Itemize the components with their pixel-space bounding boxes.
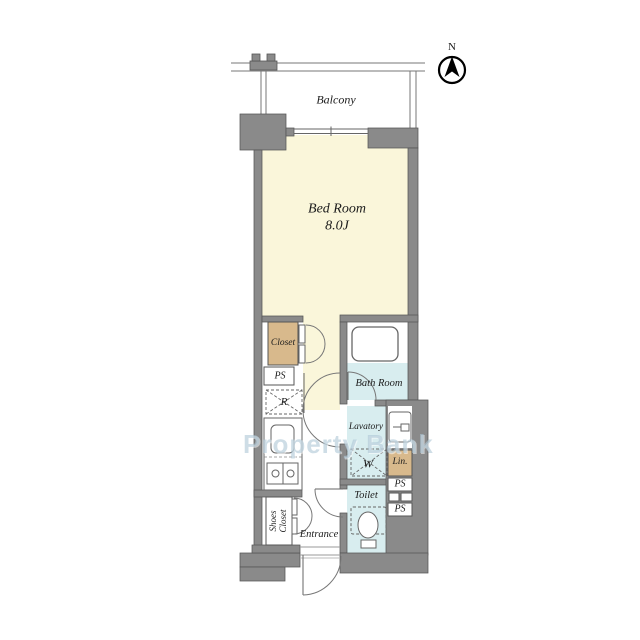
ps-right-b-label: PS bbox=[394, 504, 405, 515]
floor-plan: N Balcony Bed Room 8.0J Closet PS R Bath… bbox=[0, 0, 640, 640]
bathtub-icon bbox=[352, 327, 398, 361]
toilet-label: Toilet bbox=[354, 490, 378, 502]
refrigerator-label: R bbox=[281, 396, 288, 408]
entrance-label: Entrance bbox=[300, 529, 339, 541]
stove-icon bbox=[267, 463, 298, 484]
ps-right-a-label: PS bbox=[394, 479, 405, 490]
rail-bracket bbox=[250, 54, 277, 70]
toilet-door-arc bbox=[315, 489, 343, 517]
duct-box-a bbox=[389, 493, 399, 501]
bath-label: Bath Room bbox=[356, 378, 403, 390]
corridor-floor bbox=[303, 322, 340, 410]
ps-left-label: PS bbox=[274, 371, 285, 382]
bedroom-name-label: Bed Room bbox=[308, 201, 366, 216]
duct-box-b bbox=[401, 493, 412, 501]
closet-label: Closet bbox=[271, 338, 295, 348]
north-label: N bbox=[448, 41, 456, 53]
shoes-closet-label-line2: Closet bbox=[279, 509, 289, 532]
bedroom-size-label: 8.0J bbox=[325, 218, 349, 233]
north-arrow-icon bbox=[439, 57, 465, 84]
watermark: Property Bank bbox=[243, 429, 434, 460]
shoes-closet-label: Shoes Closet bbox=[269, 509, 289, 532]
entrance-door-arc bbox=[300, 555, 341, 595]
bedroom-window bbox=[294, 127, 368, 137]
balcony-label: Balcony bbox=[316, 93, 355, 106]
